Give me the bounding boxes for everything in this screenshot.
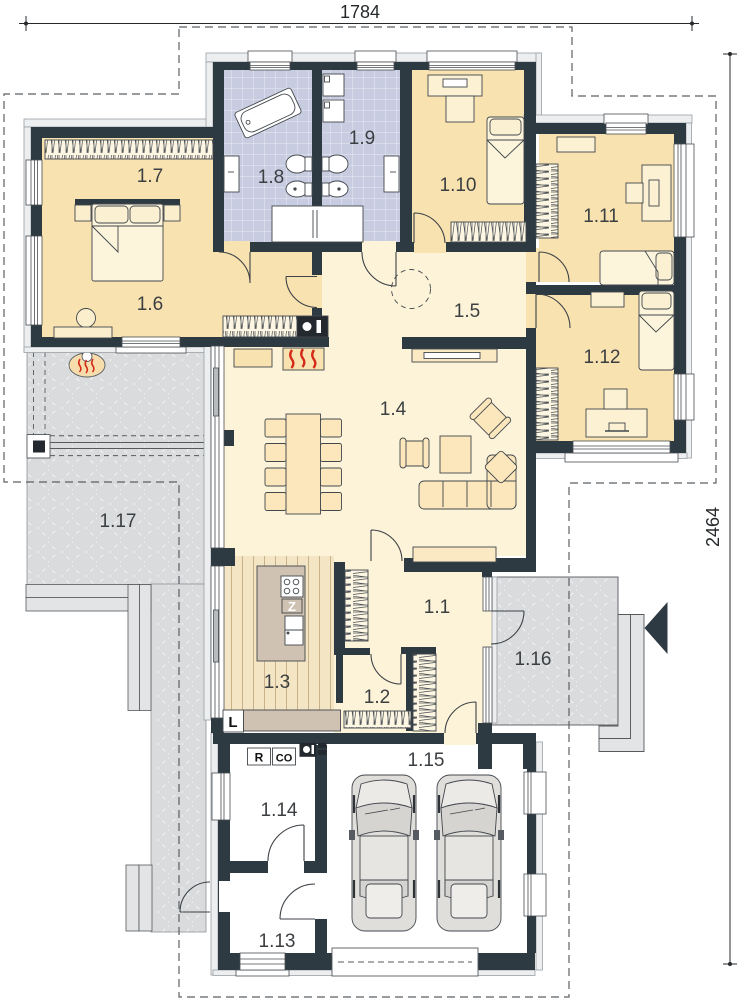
svg-text:R: R bbox=[255, 751, 264, 765]
svg-text:1.17: 1.17 bbox=[100, 511, 137, 532]
svg-text:Z: Z bbox=[288, 599, 296, 614]
svg-text:1.16: 1.16 bbox=[515, 649, 552, 670]
svg-text:2464: 2464 bbox=[703, 507, 723, 547]
svg-text:1.8: 1.8 bbox=[258, 167, 284, 188]
svg-text:1.13: 1.13 bbox=[259, 931, 296, 952]
svg-text:1.1: 1.1 bbox=[424, 597, 450, 618]
svg-text:1.10: 1.10 bbox=[440, 175, 477, 196]
svg-text:1.6: 1.6 bbox=[137, 294, 163, 315]
svg-text:1.2: 1.2 bbox=[364, 687, 390, 708]
svg-text:1.12: 1.12 bbox=[584, 347, 621, 368]
svg-text:1.9: 1.9 bbox=[349, 128, 375, 149]
svg-text:1.14: 1.14 bbox=[261, 800, 298, 821]
svg-text:1.4: 1.4 bbox=[380, 399, 407, 420]
svg-text:1.7: 1.7 bbox=[137, 166, 163, 187]
svg-text:1.5: 1.5 bbox=[454, 301, 480, 322]
svg-text:1.3: 1.3 bbox=[264, 672, 290, 693]
svg-text:1.15: 1.15 bbox=[408, 750, 445, 771]
svg-text:1.11: 1.11 bbox=[583, 206, 619, 227]
svg-text:1784: 1784 bbox=[340, 2, 380, 22]
svg-text:CO: CO bbox=[276, 753, 293, 765]
svg-text:L: L bbox=[228, 714, 237, 731]
